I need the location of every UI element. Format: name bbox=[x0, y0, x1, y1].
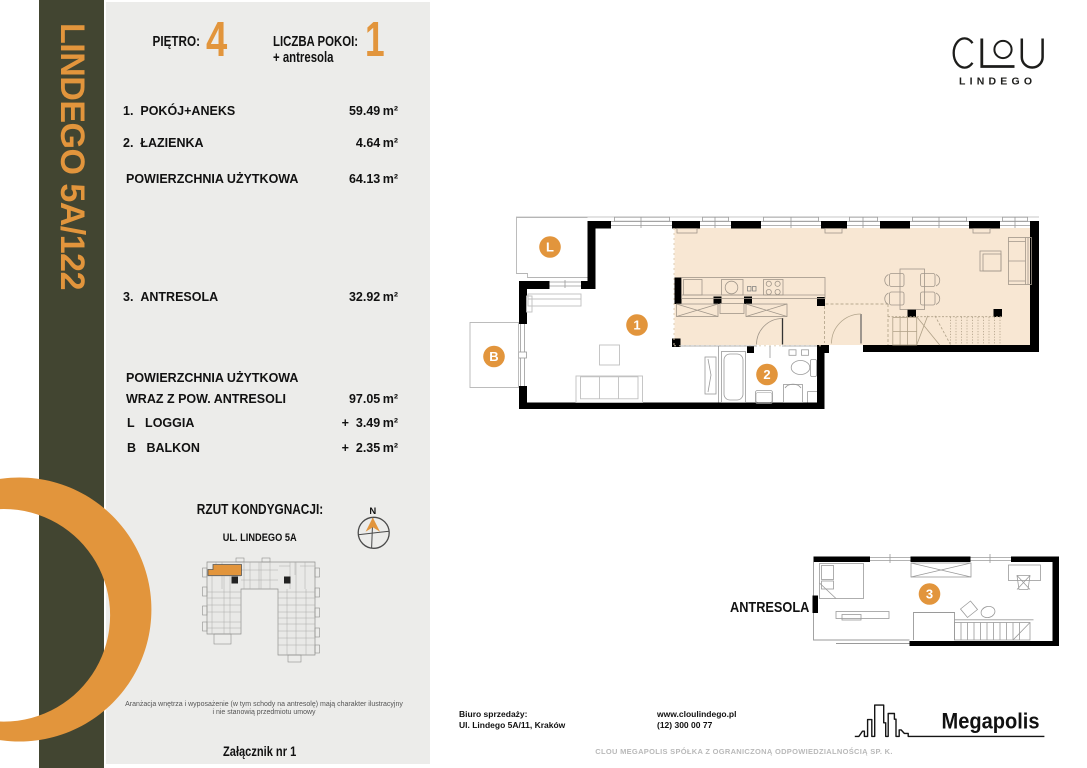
svg-text:2: 2 bbox=[763, 367, 770, 382]
svg-text:LINDEGO: LINDEGO bbox=[959, 76, 1036, 88]
svg-text:1: 1 bbox=[633, 318, 640, 333]
svg-text:Megapolis: Megapolis bbox=[942, 709, 1040, 734]
svg-text:L: L bbox=[546, 240, 554, 255]
svg-text:B: B bbox=[489, 349, 498, 364]
svg-text:3: 3 bbox=[926, 587, 933, 602]
svg-text:N: N bbox=[369, 506, 376, 517]
